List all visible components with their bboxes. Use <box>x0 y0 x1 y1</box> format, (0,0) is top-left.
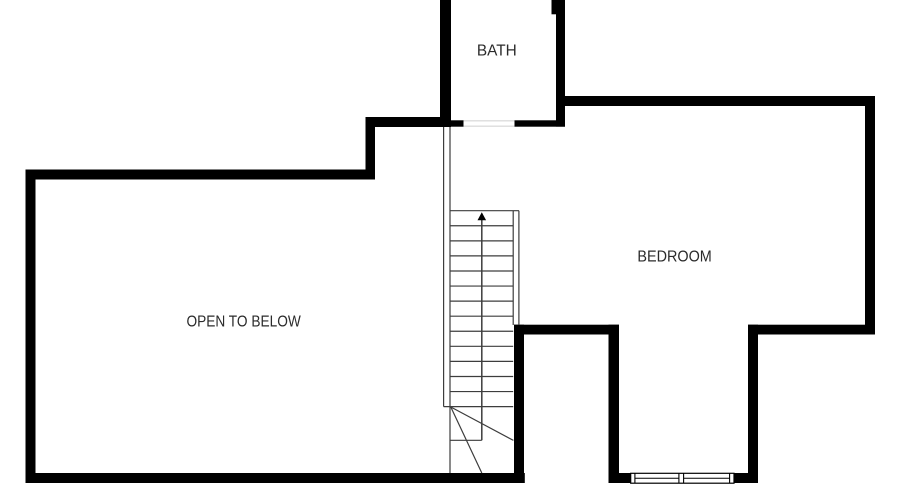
svg-text:BATH: BATH <box>477 42 517 59</box>
svg-text:OPEN TO BELOW: OPEN TO BELOW <box>186 313 300 330</box>
svg-text:BEDROOM: BEDROOM <box>637 248 711 266</box>
